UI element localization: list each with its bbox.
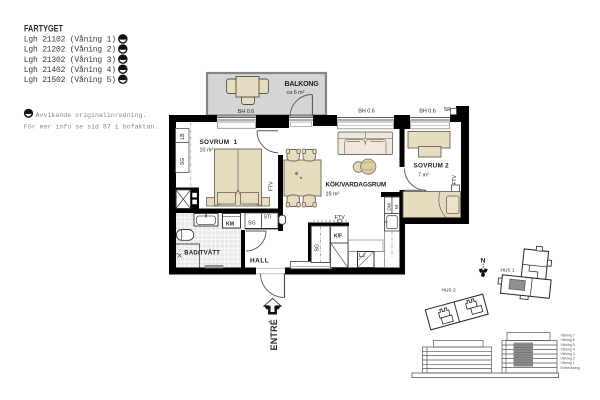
svg-text:M: M: [394, 205, 399, 209]
svg-text:Våning 1: Våning 1: [561, 361, 575, 365]
svg-text:10 m²: 10 m²: [200, 148, 214, 154]
svg-text:HALL: HALL: [250, 257, 269, 264]
svg-text:FTV: FTV: [452, 174, 458, 184]
svg-text:För mer info se sid 87 i bofak: För mer info se sid 87 i bofaktan.: [24, 124, 159, 131]
svg-text:SG: SG: [315, 244, 321, 252]
svg-text:Våning 4: Våning 4: [561, 347, 575, 351]
svg-text:ca 6 m²: ca 6 m²: [287, 90, 305, 96]
svg-text:ENTRÉ: ENTRÉ: [269, 319, 279, 351]
svg-text:N: N: [481, 258, 486, 265]
svg-text:Lgh 21302 (Våning 3): Lgh 21302 (Våning 3): [24, 56, 116, 65]
svg-text:Våning 7: Våning 7: [561, 334, 575, 338]
svg-text:K/F: K/F: [334, 234, 342, 240]
svg-text:19 m²: 19 m²: [326, 191, 340, 197]
svg-text:SOVRUM 2: SOVRUM 2: [414, 162, 450, 169]
svg-text:SOVRUM 1: SOVRUM 1: [200, 139, 238, 146]
svg-text:FTV: FTV: [269, 181, 275, 191]
svg-text:Lgh 21102 (Våning 1): Lgh 21102 (Våning 1): [24, 36, 116, 45]
svg-text:Våning 5: Våning 5: [561, 343, 575, 347]
svg-text:BH 0.6: BH 0.6: [419, 108, 435, 114]
svg-text:HUS 2: HUS 2: [442, 287, 456, 293]
svg-text:STI: STI: [264, 215, 272, 221]
svg-text:Våning 6: Våning 6: [561, 338, 575, 342]
svg-text:HUS 1: HUS 1: [501, 267, 515, 273]
svg-text:7 m²: 7 m²: [418, 172, 429, 178]
svg-text:BALKONG: BALKONG: [285, 81, 320, 88]
svg-text:BH 0.6: BH 0.6: [358, 108, 374, 114]
svg-text:KÖK/VARDAGSRUM: KÖK/VARDAGSRUM: [326, 179, 387, 188]
svg-text:FARTYGET: FARTYGET: [24, 22, 64, 33]
svg-text:Lgh 21502 (Våning 5): Lgh 21502 (Våning 5): [24, 76, 116, 85]
svg-text:KM: KM: [226, 222, 234, 228]
svg-text:Entrévåning: Entrévåning: [561, 366, 580, 370]
svg-text:SG: SG: [180, 158, 186, 165]
svg-text:Våning 3: Våning 3: [561, 352, 575, 356]
svg-text:SR: SR: [444, 107, 451, 113]
svg-text:BH 0.6: BH 0.6: [238, 109, 254, 115]
svg-text:SG: SG: [248, 221, 256, 227]
svg-text:DM: DM: [387, 203, 392, 210]
svg-text:BAD/TVÄTT: BAD/TVÄTT: [184, 250, 220, 257]
svg-text:Avvikande originalinredning.: Avvikande originalinredning.: [36, 112, 147, 119]
svg-text:LB: LB: [180, 133, 186, 140]
svg-text:Lgh 21402 (Våning 4): Lgh 21402 (Våning 4): [24, 66, 116, 75]
svg-text:Lgh 21202 (Våning 2): Lgh 21202 (Våning 2): [24, 46, 116, 55]
svg-text:Våning 2: Våning 2: [561, 357, 575, 361]
